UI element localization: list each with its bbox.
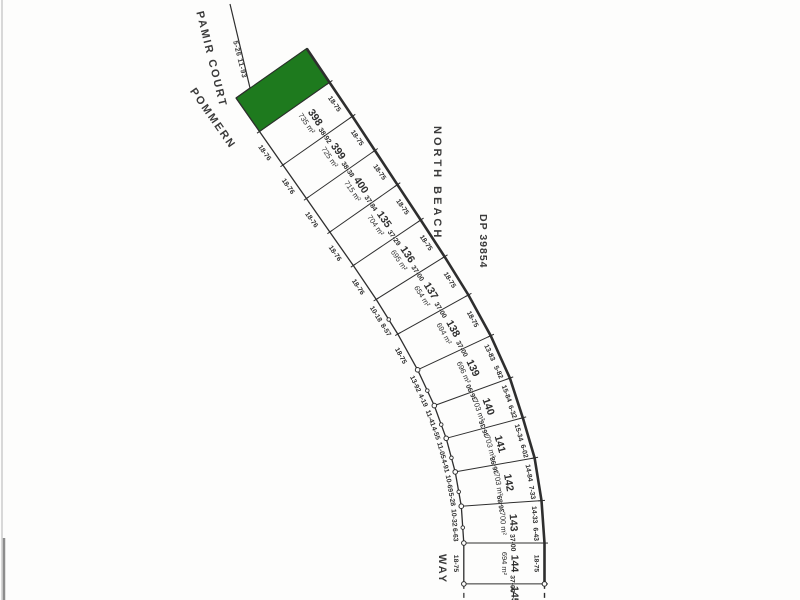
rear-dimension-label: 13-83 [482,344,496,363]
frontage-dimension-label: 10-32 [449,509,457,527]
divider-dimension-label: 37-29 [386,229,402,247]
rotated-label-group: 7-33 [527,485,536,500]
frontage-dimension-label: 18-75 [393,347,408,366]
survey-point-circle [462,582,467,587]
divider-dimension-label: 37-00 [508,534,516,552]
survey-point-circle [444,436,449,441]
rotated-label-group: 37-00 [432,301,447,320]
rotated-label-group: 14-84 [523,464,533,483]
locality-label-north-beach: NORTH BEACH [431,126,443,240]
boundary-tick [531,457,538,458]
rear-dimension-label: 7-33 [527,485,536,500]
rotated-label-group: 18-75 [393,347,408,366]
rotated-label-group: 18-75 [533,555,540,573]
rotated-label-group: 144694 m² [500,552,520,576]
frontage-dimension-label: 8-57 [379,323,392,338]
rotated-label-group: 18-75 [452,555,459,573]
rotated-label-group: 11-41 [424,409,436,428]
rotated-label-group: 15-84 [500,384,513,403]
rotated-label-group: 4-19 [417,393,429,408]
rotated-label-group: 6-32 [506,404,517,419]
lot-number-label: 144 [509,555,521,573]
survey-point-circle [462,541,467,546]
rotated-label-group: 8-57 [379,323,392,338]
rotated-label-group: 10-69 [444,474,454,493]
boundary-tick [280,163,285,166]
rotated-label-group: 11-05 [435,441,446,459]
divider-dimension-label: 37-00 [409,264,425,283]
rotated-label-group: 37-00 [454,340,469,359]
boundary-tick [304,197,309,200]
rotated-label-group: 37-84 [362,195,378,213]
divider-dimension-label: 37-00 [432,301,447,320]
divider-dimension-label: 36-89 [496,494,506,513]
lot-number-label: 145 [509,586,521,600]
rotated-label-group: 15-34 [513,424,524,443]
survey-point-circle [459,504,464,509]
chord-point-circle [457,490,461,494]
chord-point-circle [426,389,430,393]
frontage-dimension-label: 11-41 [424,409,436,428]
boundary-tick [351,264,356,267]
rotated-label-group: 6-63 [451,528,459,542]
rear-dimension-label: 14-33 [530,506,538,524]
rotated-label-group: 38-92 [317,127,333,145]
survey-point-circle [453,470,458,475]
survey-point-circle [415,368,420,373]
rear-dimension-label: 15-34 [513,424,524,443]
frontage-dimension-label: 4-91 [440,459,450,474]
rotated-label-group: 6-43 [531,527,539,541]
deposited-plan-label: DP 39854 [477,214,489,269]
frontage-dimension-label: 4-55 [430,426,441,441]
rotated-label-group: 142703 m² [492,470,516,497]
rear-dimension-label: 5-82 [492,365,504,380]
rotated-label-group: 14-33 [530,506,538,524]
chord-point-circle [450,456,454,460]
rotated-label-group: 4-91 [440,459,450,474]
survey-point-circle [432,403,437,408]
rotated-label-group: 37-00 [508,534,516,552]
chord-point-circle [461,526,465,530]
frontage-dimension-label: 10-69 [444,474,454,493]
frontage-dimension-label: 4-19 [417,393,429,408]
divider-dimension-label: 38-38 [339,161,355,179]
rear-dimension-label: 15-84 [500,384,513,403]
rotated-label-group: 6-02 [519,444,529,459]
rotated-label-group: 141703 m² [483,431,509,459]
chord-point-circle [387,318,391,322]
street-label-way: WAY [436,554,448,584]
frontage-dimension-label: 18-75 [452,555,459,573]
rotated-label-group: 36-89 [496,494,506,513]
rotated-label-group: 37-00 [409,264,425,283]
rotated-label-group: 10-32 [449,509,457,527]
rotated-label-group: 5-82 [492,365,504,380]
frontage-dimension-label: 5-28 [447,492,456,507]
frontage-dimension-label: 11-05 [435,441,446,459]
rotated-label-group: 145 [509,586,521,600]
rear-dimension-label: 6-02 [519,444,529,459]
survey-point-circle [542,582,547,587]
rotated-label-group: 4-55 [430,426,441,441]
rotated-label-group: 5-28 [447,492,456,507]
lot-area-label: 694 m² [500,552,509,576]
rotated-label-group: 143700 m² [498,511,520,536]
plan-canvas: 398735 m²38-9218-7618-75399725 m²38-3818… [0,0,800,600]
lot-area-label: 700 m² [498,511,509,535]
rotated-label-group: 37-29 [386,229,402,247]
north-beach-boundary-line [307,49,545,584]
rear-dimension-label: 18-75 [533,555,540,573]
rear-dimension-label: 14-84 [523,464,533,483]
subdivision-plan-image: 398735 m²38-9218-7618-75399725 m²38-3818… [0,0,800,600]
rotated-label-group: 38-38 [339,161,355,179]
divider-dimension-label: 37-00 [454,340,469,359]
chord-point-circle [439,423,443,427]
rear-dimension-label: 6-43 [531,527,539,541]
frontage-dimension-label: 13-92 [408,375,422,394]
divider-dimension-label: 37-84 [362,195,378,213]
rear-dimension-label: 6-32 [506,404,517,419]
divider-dimension-label: 38-92 [317,127,333,145]
rotated-label-group: 139696 m² [455,355,484,385]
frontage-dimension-label: 6-63 [451,528,459,542]
boundary-tick [327,230,332,233]
rotated-label-group: 13-83 [482,344,496,363]
rotated-label-group: 13-92 [408,375,422,394]
